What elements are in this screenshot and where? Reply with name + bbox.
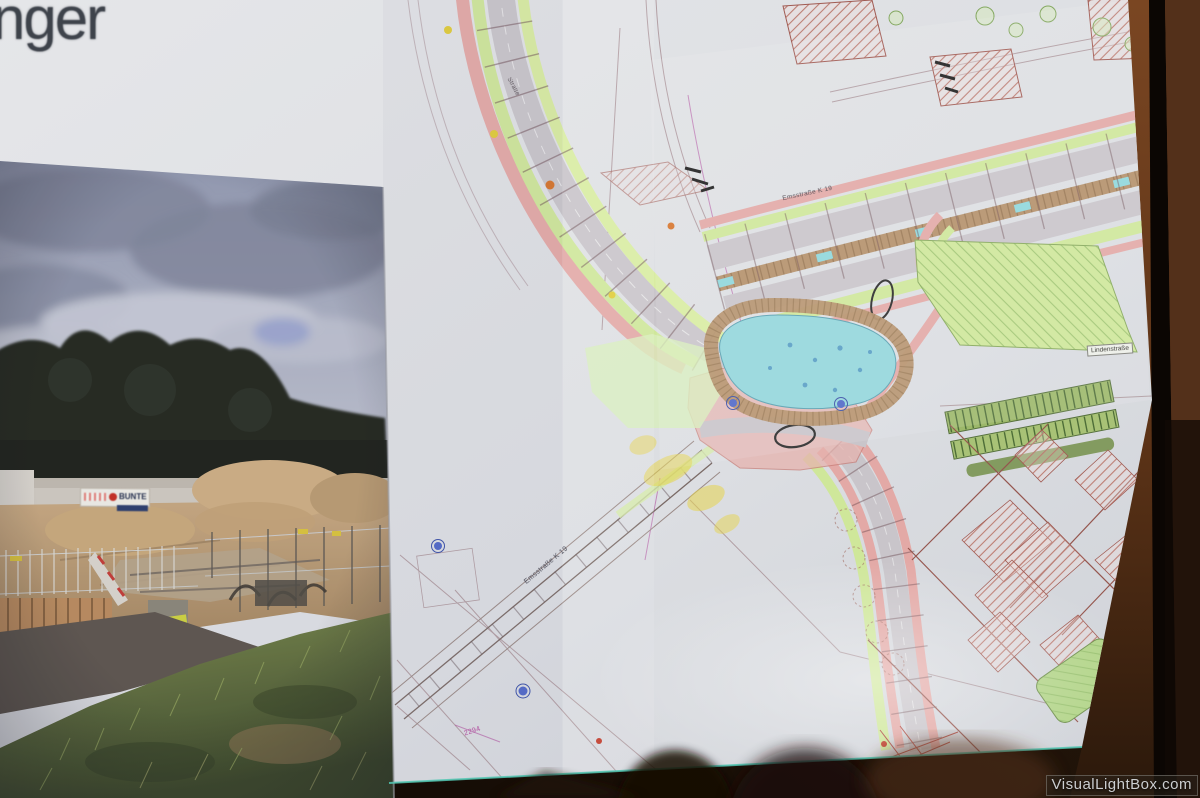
construction-photo <box>0 150 410 798</box>
projected-slide-photo: nger Emsstraße K 19 Emsstraße K 19 Straß… <box>0 0 1200 798</box>
site-plan <box>383 0 1162 798</box>
paper-shading <box>383 0 1150 798</box>
visuallightbox-watermark[interactable]: VisualLightBox.com <box>1046 775 1198 796</box>
scene-graphics <box>0 0 1200 798</box>
